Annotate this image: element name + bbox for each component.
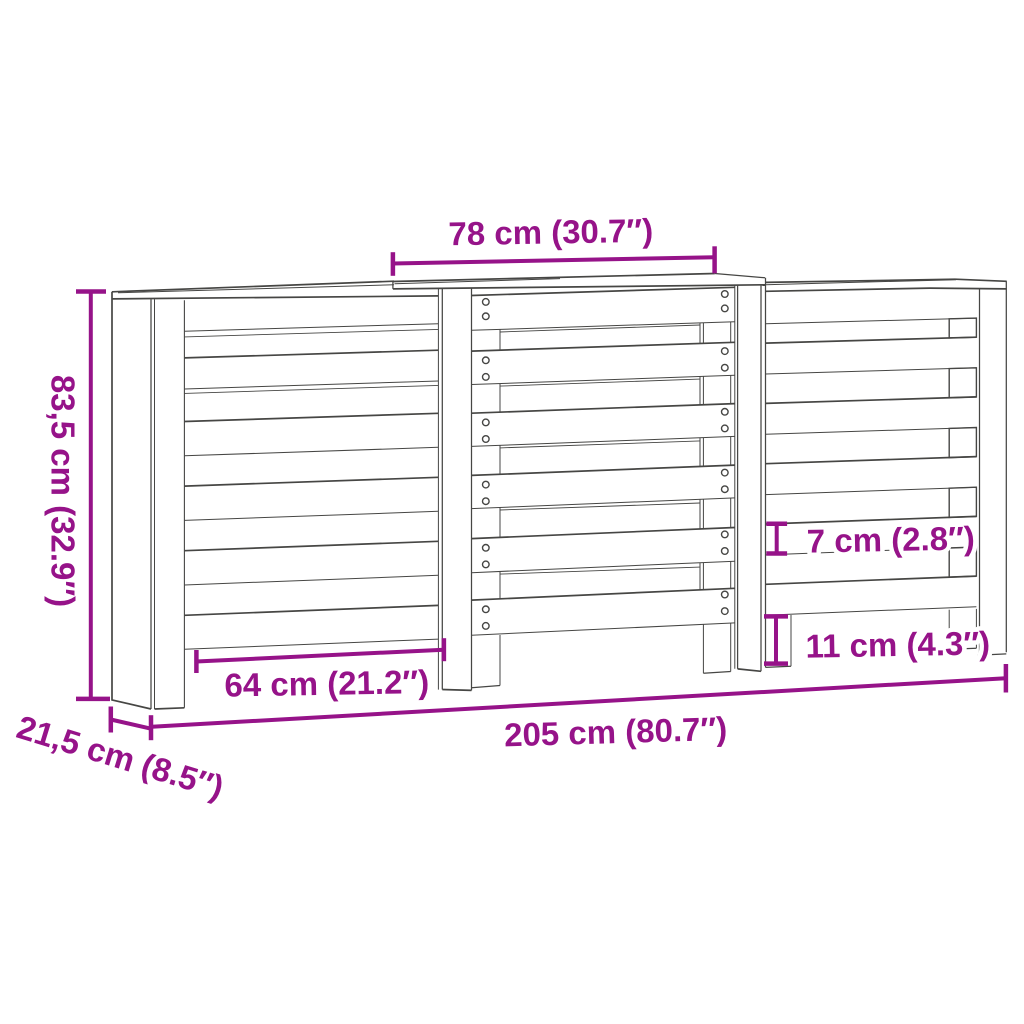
svg-text:11 cm (4.3″): 11 cm (4.3″) xyxy=(805,624,990,664)
svg-text:205 cm (80.7″): 205 cm (80.7″) xyxy=(504,710,728,754)
svg-text:7 cm (2.8″): 7 cm (2.8″) xyxy=(806,519,975,559)
svg-text:64 cm (21.2″): 64 cm (21.2″) xyxy=(224,663,429,704)
svg-text:78 cm (30.7″): 78 cm (30.7″) xyxy=(448,212,653,253)
svg-text:83,5 cm (32.9″): 83,5 cm (32.9″) xyxy=(45,375,82,607)
